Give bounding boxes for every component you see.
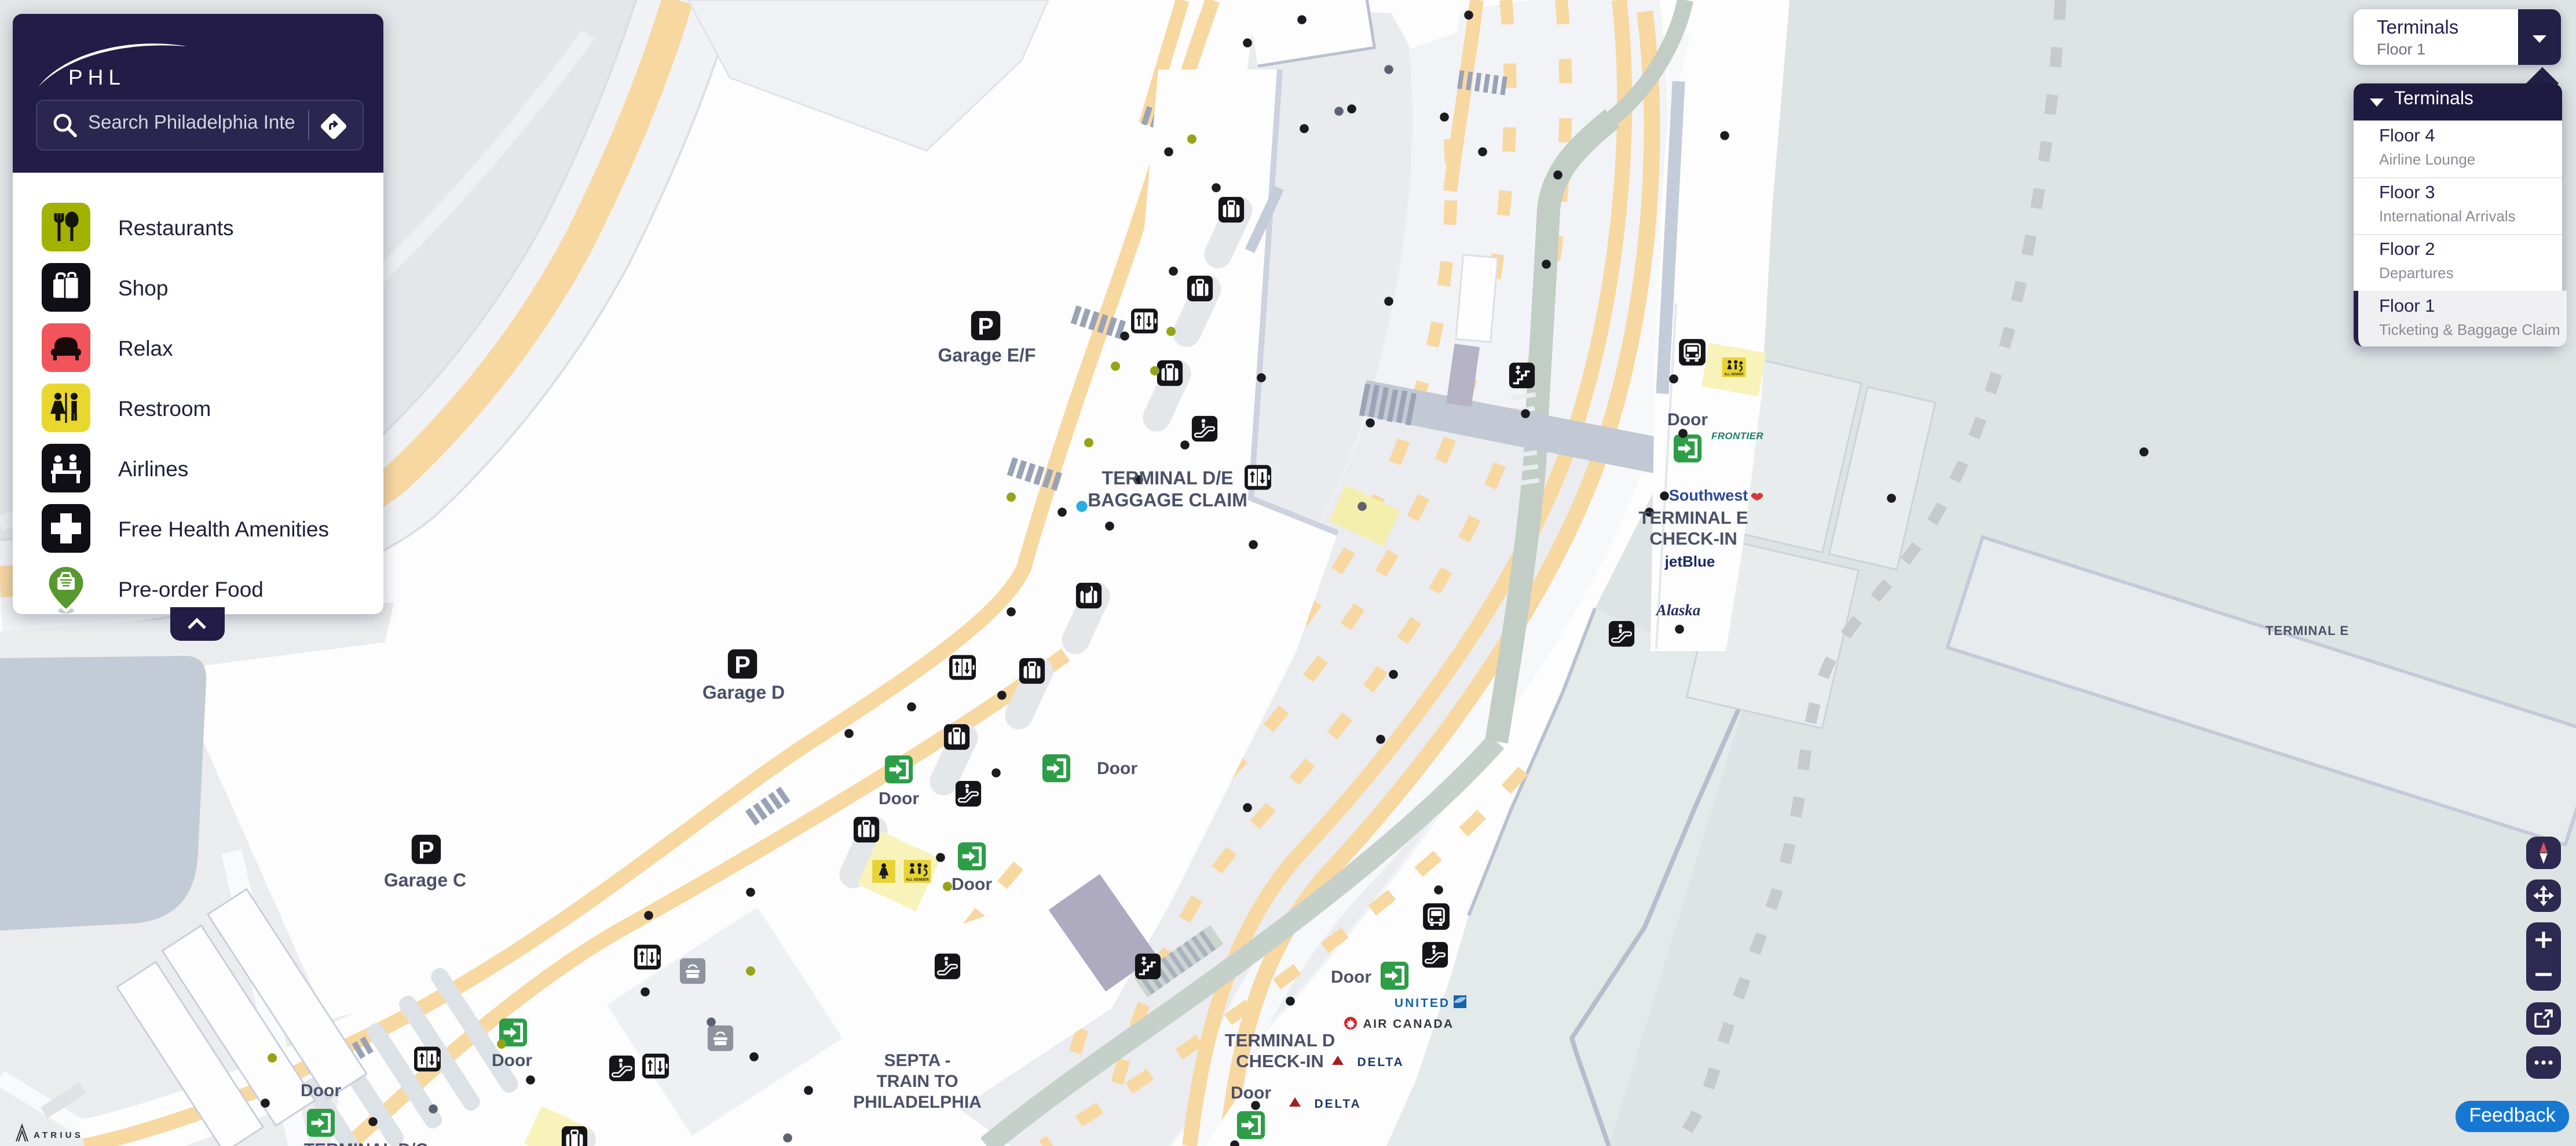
svg-text:ALL GENDER: ALL GENDER xyxy=(906,878,929,882)
svg-text:TERMINAL E: TERMINAL E xyxy=(2266,623,2349,638)
svg-text:SEPTA -: SEPTA - xyxy=(884,1051,950,1070)
svg-text:Door: Door xyxy=(1097,759,1137,778)
svg-text:Southwest: Southwest xyxy=(1669,487,1748,504)
svg-text:ALL GENDER: ALL GENDER xyxy=(1724,373,1743,377)
svg-text:PHL: PHL xyxy=(68,65,126,89)
svg-text:DELTA: DELTA xyxy=(1315,1097,1362,1111)
svg-text:Door: Door xyxy=(492,1051,532,1070)
svg-text:Garage D: Garage D xyxy=(702,682,785,703)
svg-text:Door: Door xyxy=(952,875,992,894)
svg-text:TERMINAL E: TERMINAL E xyxy=(1639,508,1748,528)
svg-text:TRAIN TO: TRAIN TO xyxy=(876,1072,958,1091)
svg-text:ATRIUS: ATRIUS xyxy=(34,1130,83,1140)
svg-text:UNITED: UNITED xyxy=(1395,997,1450,1010)
svg-text:Alaska: Alaska xyxy=(1655,601,1701,619)
svg-text:Door: Door xyxy=(1331,968,1371,987)
svg-text:TERMINAL D: TERMINAL D xyxy=(1225,1030,1335,1050)
svg-text:jetBlue: jetBlue xyxy=(1664,553,1715,570)
svg-text:Door: Door xyxy=(1667,410,1708,429)
svg-text:Door: Door xyxy=(301,1081,341,1100)
svg-text:TERMINAL D/C: TERMINAL D/C xyxy=(304,1140,428,1146)
svg-text:CHECK-IN: CHECK-IN xyxy=(1649,528,1737,549)
svg-text:AIR CANADA: AIR CANADA xyxy=(1363,1017,1454,1031)
svg-text:Door: Door xyxy=(1231,1083,1271,1103)
svg-text:Door: Door xyxy=(879,789,919,808)
svg-text:FRONTIER: FRONTIER xyxy=(1711,430,1763,441)
svg-text:Garage C: Garage C xyxy=(384,870,466,890)
svg-text:CHECK-IN: CHECK-IN xyxy=(1236,1051,1324,1071)
svg-text:TERMINAL D/E: TERMINAL D/E xyxy=(1102,468,1234,488)
svg-text:Garage E/F: Garage E/F xyxy=(938,345,1036,366)
svg-text:DELTA: DELTA xyxy=(1357,1056,1404,1069)
svg-text:PHILADELPHIA: PHILADELPHIA xyxy=(853,1093,982,1112)
svg-text:BAGGAGE CLAIM: BAGGAGE CLAIM xyxy=(1088,490,1247,510)
